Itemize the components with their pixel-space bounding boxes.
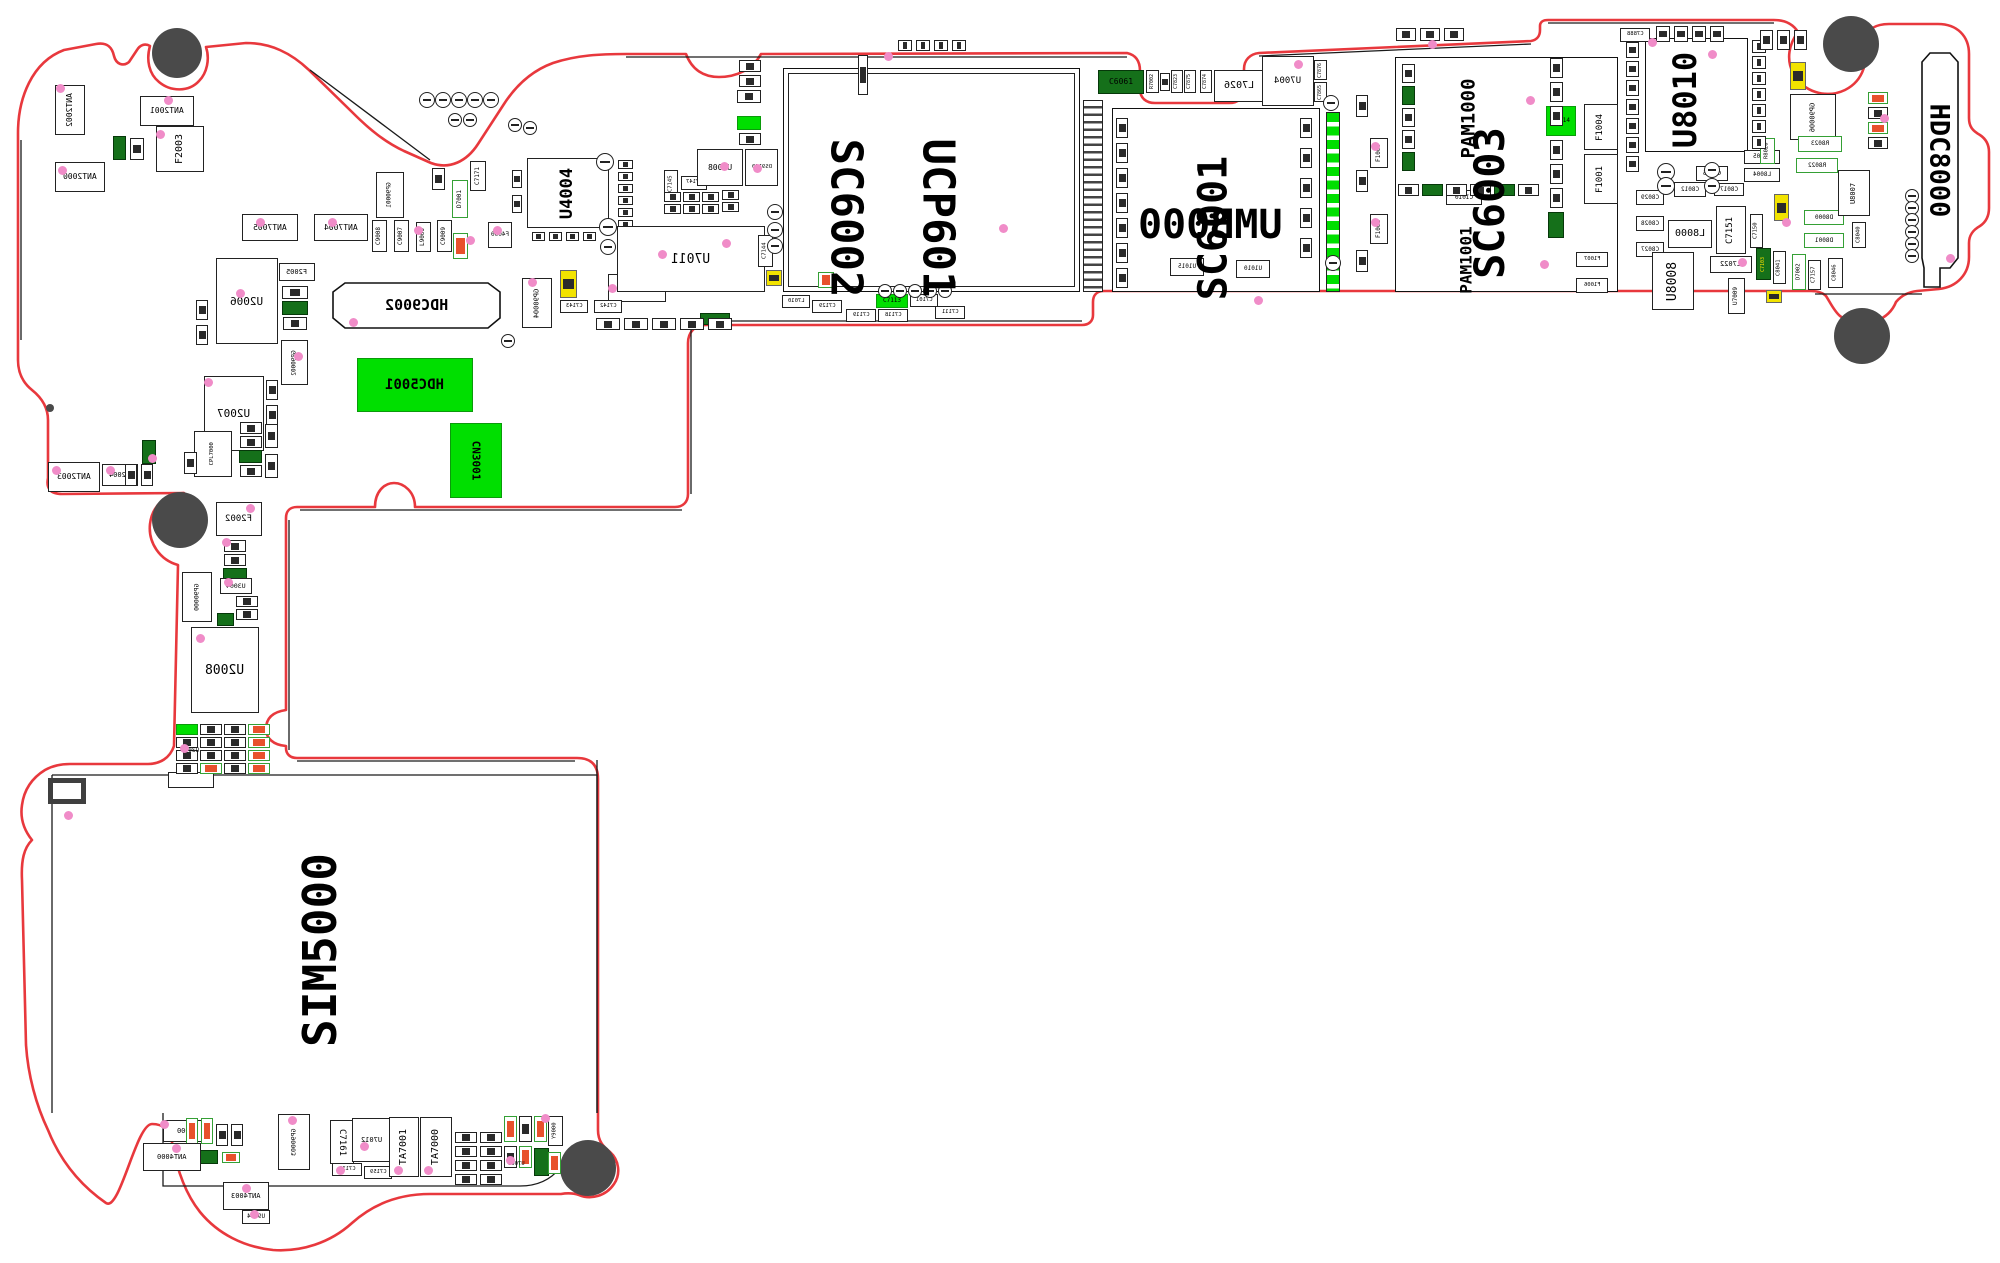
smd-part (934, 40, 948, 51)
smd-part (240, 436, 262, 448)
part-u8010: U8010 (1662, 55, 1708, 145)
part-label: C7145 (668, 176, 674, 193)
part-label: C7129 (819, 304, 836, 310)
part-c7888: C7888 (1620, 28, 1650, 42)
smd-part (224, 554, 246, 566)
part-body (903, 42, 908, 48)
part-hdc5001: HDC5001 (357, 358, 473, 412)
part-label: C7151 (1727, 216, 1736, 243)
part-body (746, 136, 754, 143)
part-body (746, 78, 754, 85)
smd-part (1710, 26, 1724, 42)
smd-part (618, 184, 633, 193)
smd-part (480, 1160, 502, 1171)
part-body (921, 42, 926, 48)
part-body (939, 42, 944, 48)
part-body (623, 198, 628, 203)
part-body (1659, 31, 1667, 37)
smd-part (141, 464, 153, 486)
mount-hole (1834, 308, 1890, 364)
part-label: R8023 (1811, 141, 1829, 147)
smd-part (534, 1148, 549, 1176)
smd-part (560, 270, 577, 298)
part-label: TA7001 (399, 1129, 409, 1165)
via-pad (435, 92, 451, 108)
part-body (1757, 75, 1762, 83)
smd-part (1777, 30, 1790, 50)
test-point (196, 634, 205, 643)
part-u7011: U7011 (617, 226, 765, 292)
part-label: Y9000 (553, 1123, 559, 1140)
part-label: D7001 (457, 190, 463, 208)
part-label: R8022 (1808, 163, 1826, 169)
via-pad (467, 92, 483, 108)
part-body (536, 234, 540, 239)
part-body (462, 1148, 470, 1154)
part-u8008: U8008 (1652, 252, 1694, 310)
part-body (728, 192, 734, 198)
part-sc6002: SC6002 (800, 140, 890, 295)
part-label: HDC9002 (385, 298, 448, 313)
smd-part (176, 724, 198, 735)
part-label: SC6002 (823, 138, 867, 297)
via-pad (419, 92, 435, 108)
part-c7157: C7157 (1808, 260, 1821, 290)
via-pad (767, 222, 783, 238)
test-point (999, 224, 1008, 233)
part-body (253, 739, 266, 745)
smd-part (1550, 188, 1563, 208)
part-label: ANT4000 (157, 1154, 187, 1161)
smd-part (737, 116, 761, 130)
part-label: UCP601 (915, 138, 959, 297)
part-label: C7157 (1812, 267, 1818, 284)
smd-part (1656, 26, 1670, 42)
part-u7008: U7008 (500, 1158, 532, 1171)
part-body (1303, 154, 1310, 161)
part-body (268, 462, 276, 471)
test-point (1371, 142, 1380, 151)
part-label: GP90000 (194, 583, 201, 610)
part-gp90002: GP90002 (281, 340, 308, 385)
part-label: SIM5000 (297, 853, 343, 1047)
part-body (231, 726, 239, 732)
part-c9008: C9008 (372, 220, 387, 252)
part-body (689, 206, 695, 212)
test-point (58, 166, 67, 175)
smd-part (1626, 99, 1639, 115)
test-point (1738, 258, 1747, 267)
part-body (1453, 187, 1461, 194)
part-body (551, 1156, 558, 1170)
smd-part (224, 750, 246, 761)
part-body (1553, 194, 1561, 201)
part-label: U8007 (1850, 182, 1857, 203)
part-label: C8028 (1641, 221, 1659, 227)
part-label: C8040 (1856, 227, 1862, 244)
part-body (1629, 47, 1637, 53)
part-c7142: C7142 (594, 300, 622, 313)
part-d8001: D8001 (1804, 233, 1844, 248)
test-point (52, 466, 61, 475)
part-body (1405, 187, 1413, 194)
smd-part (739, 60, 761, 72)
smd-part (196, 325, 208, 345)
part-body (205, 765, 218, 771)
test-point (528, 278, 537, 287)
via-pad (523, 121, 537, 135)
part-f2005: F2005 (279, 263, 315, 281)
part-body (253, 726, 266, 732)
smd-part (224, 724, 246, 735)
part-label: GP90006 (1809, 102, 1816, 132)
part-body (688, 321, 697, 328)
smd-part (1626, 61, 1639, 77)
via-pad (463, 113, 477, 127)
part-body (623, 174, 628, 179)
part-c8046: C8046 (1828, 258, 1843, 288)
part-l7010: L7010 (782, 295, 810, 308)
smd-part (130, 138, 144, 160)
smd-part (596, 318, 620, 330)
part-body (207, 739, 215, 745)
part-body (243, 611, 251, 617)
part-label: HDC5001 (385, 378, 444, 392)
part-f1007: F1007 (1576, 252, 1608, 267)
smd-part (583, 232, 596, 241)
smd-part (1626, 118, 1639, 134)
test-point (204, 378, 213, 387)
part-label: U1010 (1244, 266, 1262, 272)
part-c7151: C7151 (1716, 206, 1746, 254)
part-body (1713, 31, 1721, 37)
part-body (1119, 249, 1126, 256)
part-body (187, 459, 195, 467)
part-body (189, 1123, 195, 1140)
test-point (466, 236, 475, 245)
part-label: D7002 (1796, 264, 1802, 281)
test-point (56, 84, 65, 93)
test-point (224, 578, 233, 587)
test-point (246, 504, 255, 513)
test-point (172, 1144, 181, 1153)
part-body (632, 321, 641, 328)
part-body (268, 432, 276, 441)
part-body (207, 752, 215, 758)
smd-part (224, 737, 246, 748)
test-point (256, 218, 265, 227)
test-point (753, 164, 762, 173)
part-body (231, 765, 239, 771)
part-cn3001: CN3001 (450, 423, 502, 498)
part-ant7005: ANT7005 (242, 214, 298, 241)
smd-part (1550, 58, 1563, 78)
part-label: TA7000 (431, 1129, 441, 1165)
smd-part (265, 424, 278, 448)
part-label: C7161 (338, 1128, 347, 1155)
smd-part (231, 1124, 243, 1146)
smd-part (266, 380, 278, 400)
part-body (1769, 294, 1779, 298)
smd-part (113, 136, 126, 160)
part-body (1162, 79, 1168, 85)
test-point (608, 284, 617, 293)
part-body (1629, 66, 1637, 72)
part-body (570, 234, 574, 239)
smd-part (236, 609, 258, 620)
part-label: C7876 (1318, 62, 1323, 77)
part-label: ANT2001 (150, 107, 184, 115)
part-body (1757, 59, 1762, 67)
part-l7026: L7026 (1214, 70, 1264, 102)
part-body (1405, 70, 1413, 77)
part-y9000: Y9000 (548, 1116, 563, 1146)
part-body (1359, 177, 1366, 185)
smd-part (216, 1124, 228, 1146)
smd-part (549, 232, 562, 241)
part-body (1793, 71, 1803, 81)
smd-part (265, 454, 278, 478)
smd-part (1548, 212, 1564, 238)
part-label: C7142 (600, 304, 617, 310)
smd-part (248, 737, 270, 748)
via-pad (1657, 177, 1675, 195)
part-gp90000: GP90000 (182, 572, 212, 622)
smd-part (702, 204, 719, 214)
test-point (236, 289, 245, 298)
part-c7171: C7171 (470, 161, 486, 191)
part-body (243, 598, 251, 604)
part-label: F1001 (1597, 165, 1606, 192)
part-cpl7000: CPL7000 (194, 431, 232, 477)
part-label: C8029 (1641, 195, 1659, 201)
smd-part (453, 233, 468, 259)
smd-part (480, 1132, 502, 1143)
part-label: C8017 (1720, 187, 1738, 193)
smd-part (1626, 42, 1639, 58)
smd-part (1752, 104, 1766, 117)
part-body (708, 194, 714, 200)
smd-part (548, 1152, 561, 1174)
part-body (1757, 123, 1762, 131)
smd-part (480, 1174, 502, 1185)
smd-part (1674, 26, 1688, 42)
part-label: ANT2000 (63, 173, 97, 181)
part-body (623, 186, 628, 191)
test-point (1708, 50, 1717, 59)
smd-part (702, 192, 719, 202)
part-c9009: C9009 (437, 220, 452, 252)
part-body (1780, 36, 1788, 43)
part-body (183, 765, 191, 771)
smd-part (455, 1146, 477, 1157)
smd-part (618, 208, 633, 217)
test-point (106, 466, 115, 475)
smd-part (1550, 106, 1563, 126)
test-point (349, 318, 358, 327)
part-body (745, 93, 754, 101)
part-body (487, 1162, 495, 1168)
smd-part (248, 724, 270, 735)
part-body (957, 42, 962, 48)
smd-part (1550, 82, 1563, 102)
part-label: L7026 (1224, 81, 1254, 91)
part-c8040: C8040 (1852, 222, 1866, 248)
part-body (231, 543, 239, 550)
part-body (1629, 142, 1637, 148)
part-label: C7888 (1627, 32, 1644, 38)
smd-part (664, 192, 681, 202)
via-pad (508, 118, 522, 132)
test-point (506, 1156, 515, 1165)
part-label: C7111 (942, 310, 959, 316)
smd-part (1300, 178, 1312, 198)
smd-part (1692, 26, 1706, 42)
smd-part (1402, 152, 1415, 171)
smd-part (1356, 95, 1368, 117)
part-body (231, 557, 239, 564)
part-body (728, 204, 734, 210)
smd-part (125, 464, 137, 486)
test-point (328, 218, 337, 227)
part-c7150: C7150 (1750, 214, 1763, 248)
part-body (219, 1131, 226, 1139)
smd-part (1794, 30, 1807, 50)
part-label: CPL7000 (210, 442, 216, 465)
part-label: R7002 (1150, 74, 1155, 89)
via-pad (483, 92, 499, 108)
part-label: C7143 (566, 304, 583, 310)
smd-part (201, 1118, 213, 1144)
smd-part (1356, 250, 1368, 272)
mount-hole (1823, 16, 1879, 72)
part-c8012: C8012 (1674, 182, 1706, 197)
part-body (199, 306, 206, 313)
smd-part (455, 1132, 477, 1143)
part-r8022: R8022 (1796, 158, 1838, 173)
part-body (1405, 136, 1413, 143)
test-point (336, 1166, 345, 1175)
via-pad (448, 113, 462, 127)
part-label: C7113 (883, 298, 901, 304)
smd-part (1300, 148, 1312, 168)
part-body (253, 765, 266, 771)
smd-part (1868, 122, 1888, 134)
part-body (689, 194, 695, 200)
smd-part (952, 40, 966, 51)
part-label: D8001 (1815, 238, 1833, 244)
smd-part (737, 90, 761, 103)
test-point (722, 239, 731, 248)
test-point (64, 811, 73, 820)
part-label: F2002 (225, 515, 252, 524)
smd-part (1396, 28, 1416, 41)
part-label: C7865 (1318, 84, 1323, 99)
test-point (242, 1184, 251, 1193)
smd-part (1868, 137, 1888, 149)
part-label: D8000 (1815, 215, 1833, 221)
part-label: ANT4003 (231, 1193, 261, 1200)
smd-part (1422, 184, 1443, 196)
part-label: F2005 (286, 269, 307, 276)
part-label: U7004 (1274, 77, 1301, 86)
part-body (234, 1131, 241, 1139)
part-r8023: R8023 (1798, 136, 1842, 152)
smd-part (708, 318, 732, 330)
part-ucp601: UCP601 (892, 140, 982, 295)
part-f1001: F1001 (1584, 154, 1618, 204)
part-body (1777, 203, 1786, 213)
smd-part (1402, 64, 1415, 83)
smd-part (186, 1118, 198, 1144)
test-point (156, 130, 165, 139)
part-body (623, 162, 628, 167)
smd-part (1760, 30, 1773, 50)
part-body (456, 238, 464, 255)
via-pad (767, 204, 783, 220)
part-label: C6061 (1109, 78, 1133, 86)
test-point (360, 1142, 369, 1151)
smd-part (240, 465, 262, 477)
part-body (514, 176, 520, 182)
part-body (1359, 257, 1366, 265)
test-point (884, 52, 893, 61)
part-body (563, 279, 574, 289)
part-body (1629, 85, 1637, 91)
pcb-assembly-drawing: ANT2002ANT2001F2003ANT2000ANT7005ANT7004… (0, 0, 2000, 1263)
board-to-board-zif (1083, 100, 1103, 292)
test-point (414, 226, 423, 235)
smd-part (283, 317, 307, 330)
test-point (1254, 296, 1263, 305)
smd-part (248, 763, 270, 774)
mount-hole (560, 1140, 616, 1196)
part-u7012: U7012 (352, 1118, 392, 1162)
part-label: PAM1001 (1459, 226, 1475, 293)
smd-part (664, 204, 681, 214)
part-c7103: C7103 (1756, 248, 1771, 280)
smd-part (1518, 184, 1539, 196)
smd-part (1398, 184, 1419, 196)
part-body (1629, 123, 1637, 129)
part-body (487, 1148, 495, 1154)
part-body (670, 194, 676, 200)
part-f1004: F1004 (1584, 104, 1618, 150)
smd-part (217, 613, 234, 626)
smd-part (1116, 168, 1128, 188)
smd-part (200, 724, 222, 735)
part-u2006: U2006 (216, 258, 278, 344)
smd-part (1116, 143, 1128, 163)
smd-part (512, 195, 522, 213)
part-label: C9009 (442, 227, 448, 245)
smd-part (532, 232, 545, 241)
smd-part (739, 75, 761, 87)
sim-polarity-mark (48, 778, 86, 804)
part-body (1426, 31, 1433, 39)
via-pad (1704, 178, 1720, 194)
part-c7143: C7143 (560, 300, 588, 313)
via-pad (501, 334, 515, 348)
part-body (1757, 91, 1762, 99)
part-body (708, 206, 714, 212)
part-body (522, 1124, 530, 1134)
part-body (435, 175, 443, 183)
part-c7129: C7129 (812, 300, 842, 313)
part-label: C7159 (370, 1170, 387, 1176)
part-body (291, 320, 300, 328)
smd-part (652, 318, 676, 330)
